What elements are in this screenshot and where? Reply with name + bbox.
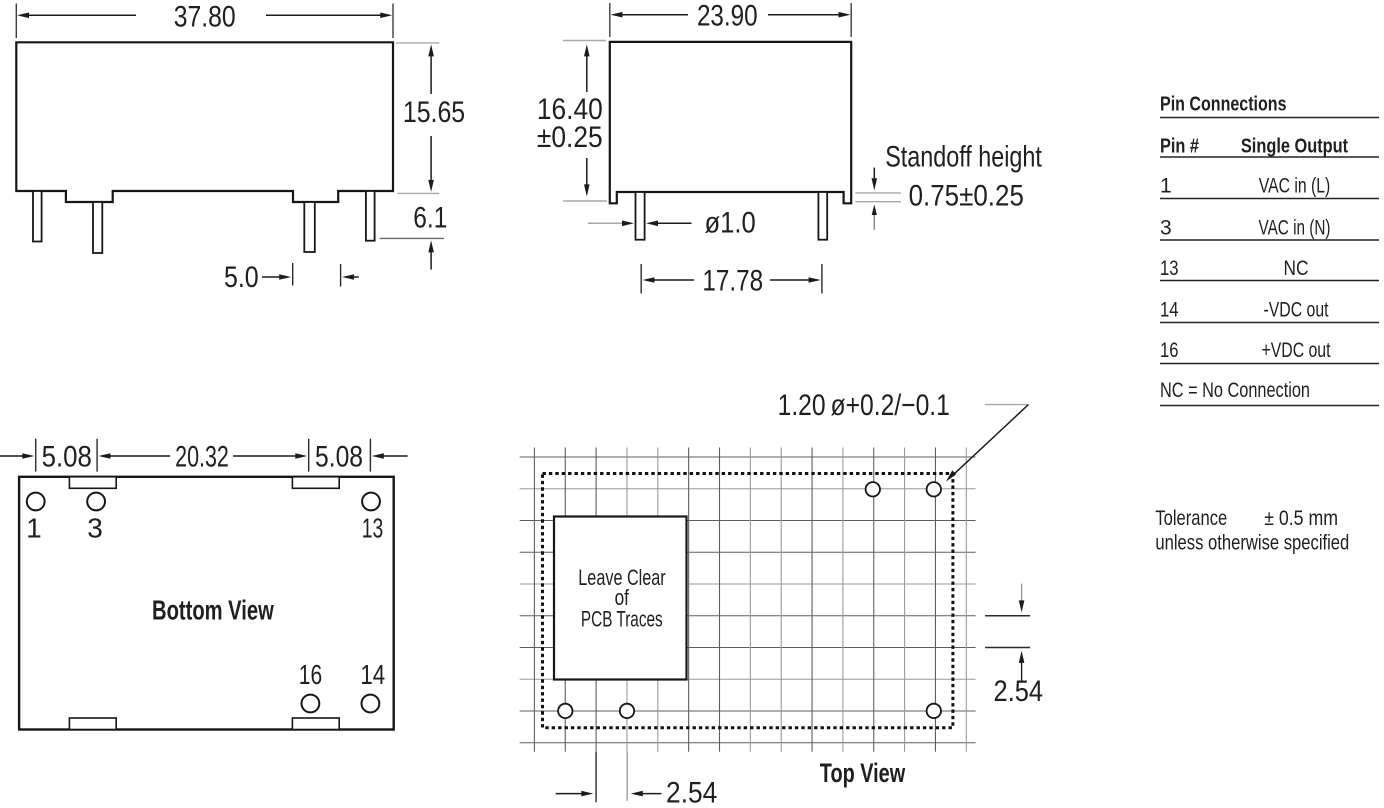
svg-text:5.08: 5.08 [315,441,363,474]
svg-text:13: 13 [362,513,384,544]
svg-text:Tolerance: Tolerance [1155,507,1227,530]
svg-text:Pin #: Pin # [1160,136,1199,158]
svg-text:13: 13 [1160,257,1179,280]
svg-text:5.08: 5.08 [42,441,92,474]
svg-text:NC = No Connection: NC = No Connection [1160,379,1310,402]
svg-text:1: 1 [26,513,42,544]
svg-text:15.65: 15.65 [403,96,465,129]
svg-text:23.90: 23.90 [697,0,758,32]
svg-text:Standoff height: Standoff height [885,140,1042,173]
svg-text:17.78: 17.78 [702,265,763,298]
svg-text:37.80: 37.80 [174,1,236,34]
svg-text:2.54: 2.54 [666,776,717,808]
svg-text:1: 1 [1160,175,1172,198]
svg-text:+VDC out: +VDC out [1262,339,1331,362]
svg-text:16: 16 [299,659,322,690]
svg-text:5.0: 5.0 [224,261,259,294]
svg-text:14: 14 [1160,299,1179,322]
svg-text:3: 3 [87,513,103,544]
svg-text:PCB Traces: PCB Traces [581,607,663,632]
svg-text:20.32: 20.32 [175,441,229,474]
svg-text:Top View: Top View [820,758,906,788]
svg-text:14: 14 [360,659,385,690]
svg-text:±0.25: ±0.25 [537,121,603,154]
svg-text:NC: NC [1284,257,1309,280]
svg-text:6.1: 6.1 [413,202,447,235]
svg-text:3: 3 [1160,217,1172,240]
svg-text:VAC in (N): VAC in (N) [1259,217,1331,240]
svg-text:unless otherwise specified: unless otherwise specified [1155,532,1349,555]
svg-text:1.20 ø+0.2/−0.1: 1.20 ø+0.2/−0.1 [778,389,950,422]
svg-text:± 0.5 mm: ± 0.5 mm [1264,507,1338,530]
svg-text:ø1.0: ø1.0 [705,207,756,240]
svg-text:16: 16 [1160,339,1179,362]
svg-text:Bottom View: Bottom View [152,595,274,626]
svg-text:-VDC out: -VDC out [1264,299,1329,322]
svg-text:0.75±0.25: 0.75±0.25 [909,180,1024,213]
svg-text:2.54: 2.54 [994,675,1044,708]
svg-text:Pin Connections: Pin Connections [1160,94,1287,116]
svg-text:Single Output: Single Output [1241,136,1348,158]
svg-text:VAC in (L): VAC in (L) [1259,175,1331,198]
